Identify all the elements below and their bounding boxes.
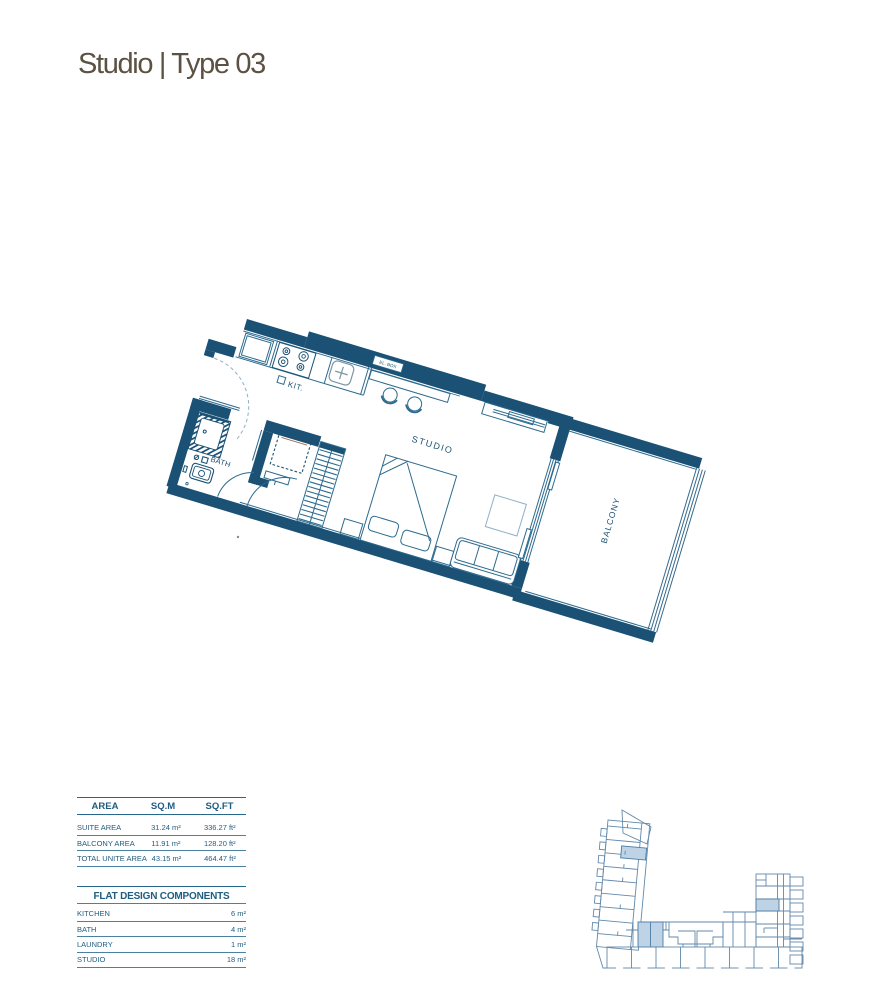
svg-text:BATH: BATH [209,455,231,470]
svg-text:STUDIO: STUDIO [411,434,455,456]
svg-text:KIT.: KIT. [287,380,305,393]
svg-text:BALCONY: BALCONY [599,496,622,544]
